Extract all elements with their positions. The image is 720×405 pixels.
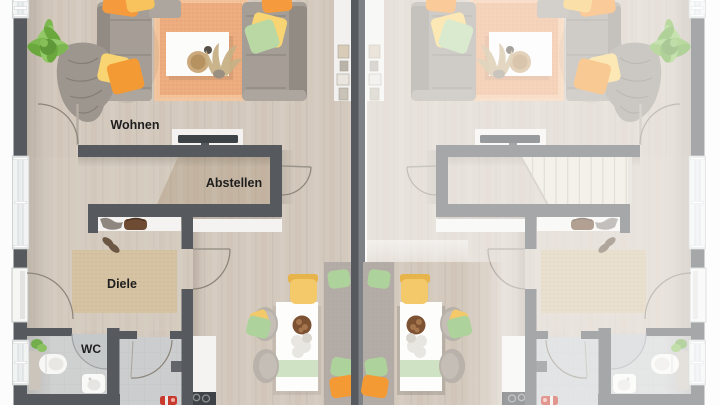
svg-text:WC: WC <box>81 342 101 356</box>
svg-text:Abstellen: Abstellen <box>206 176 262 190</box>
svg-text:Wohnen: Wohnen <box>110 118 159 132</box>
svg-text:Diele: Diele <box>107 277 137 291</box>
